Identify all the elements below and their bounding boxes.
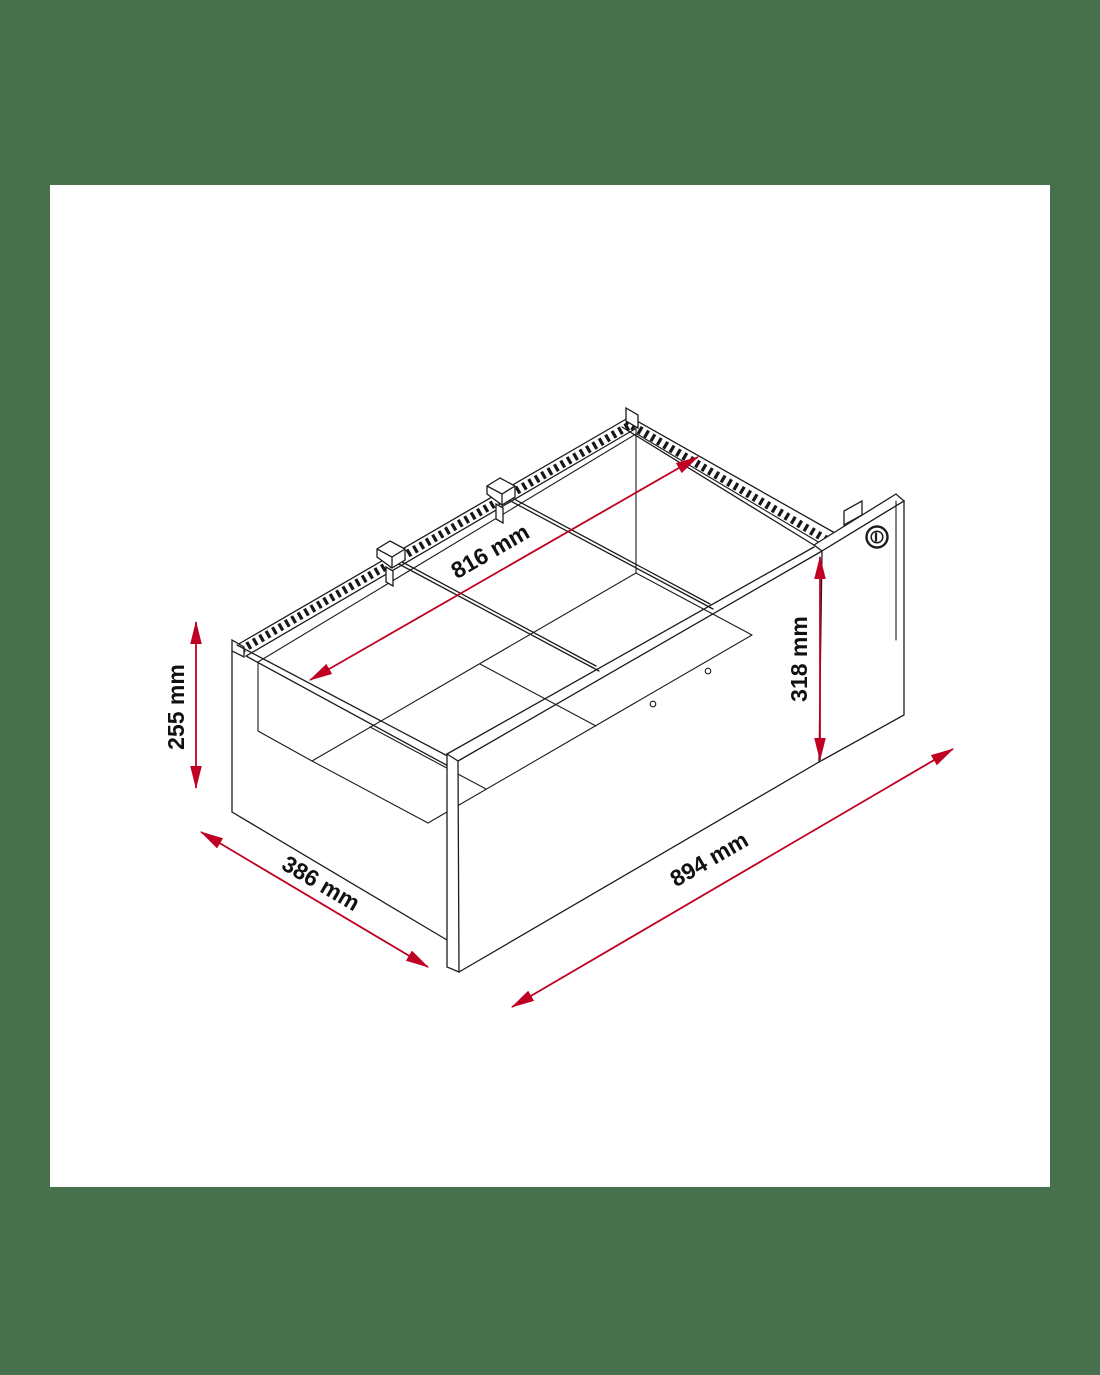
isometric-drawing: 816 mm 255 mm 318 mm 386 mm 894 mm (0, 0, 1100, 1375)
dimension-label: 318 mm (786, 616, 812, 702)
clip-tab (386, 567, 393, 586)
page-background: 816 mm 255 mm 318 mm 386 mm 894 mm (0, 0, 1100, 1375)
lock-icon (867, 527, 888, 548)
clip-tab (496, 504, 503, 523)
dimension-label: 255 mm (163, 664, 189, 750)
front-panel-end-strip (447, 754, 459, 972)
